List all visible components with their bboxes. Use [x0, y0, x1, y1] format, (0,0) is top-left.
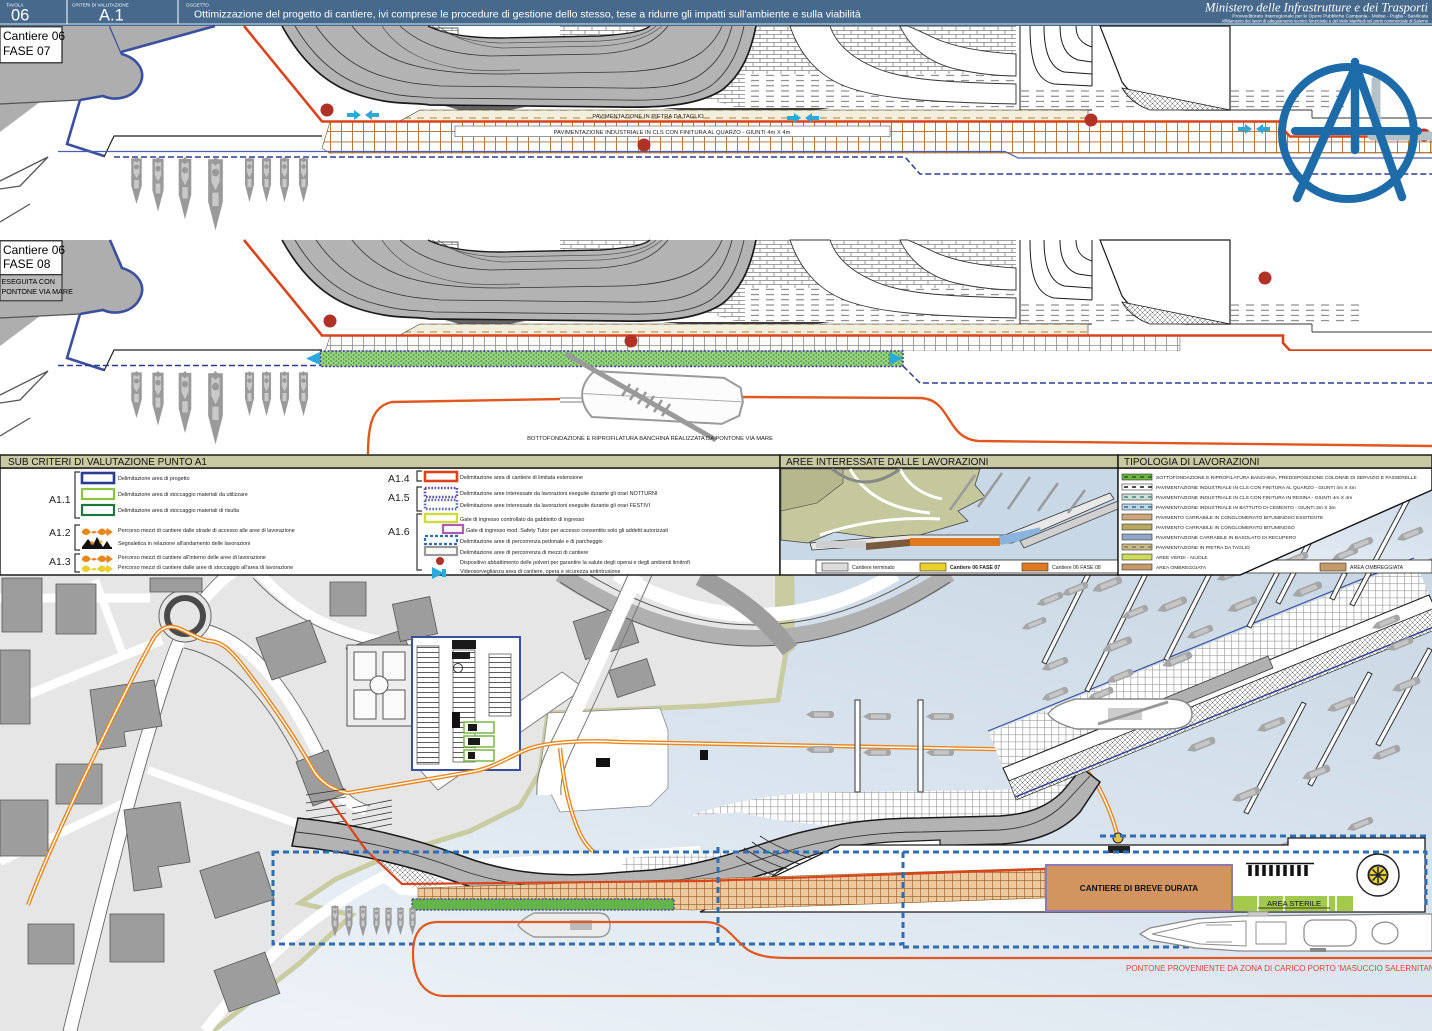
svg-text:Gate di ingresso controllato d: Gate di ingresso controllato da gabbiott… [460, 517, 584, 523]
svg-text:A1.4: A1.4 [388, 473, 410, 485]
svg-text:CANTIERE DI BREVE DURATA: CANTIERE DI BREVE DURATA [1080, 884, 1199, 893]
svg-text:Videosorveglianza area di cant: Videosorveglianza area di cantiere, oper… [460, 569, 621, 575]
svg-text:Cantiere 06: Cantiere 06 [3, 29, 65, 43]
svg-text:Cantiere 06 FASE 08: Cantiere 06 FASE 08 [1052, 565, 1101, 571]
svg-text:PONTONE VIA MARE: PONTONE VIA MARE [2, 287, 74, 296]
svg-text:A1.3: A1.3 [49, 556, 71, 568]
svg-text:AREA OMBREGGIATA: AREA OMBREGGIATA [1350, 565, 1404, 571]
svg-text:Delimitazione area di stoccagg: Delimitazione area di stoccaggio materia… [118, 508, 239, 514]
svg-text:Gate di ingresso mod. Safety T: Gate di ingresso mod. Safety Tutor per a… [466, 528, 668, 534]
svg-text:AREE INTERESSATE DALLE LAVORAZ: AREE INTERESSATE DALLE LAVORAZIONI [786, 457, 988, 468]
svg-text:Ministero delle Infrastrutture: Ministero delle Infrastrutture e dei Tra… [1204, 1, 1429, 15]
svg-text:Delimitazione aree interessate: Delimitazione aree interessate da lavora… [460, 503, 650, 509]
svg-text:SUB CRITERI DI VALUTAZIONE PUN: SUB CRITERI DI VALUTAZIONE PUNTO A1 [8, 457, 207, 468]
svg-text:Cantiere 06 FASE 07: Cantiere 06 FASE 07 [950, 565, 1000, 571]
svg-text:Delimitazione aree di percorre: Delimitazione aree di percorrenza di mez… [460, 550, 588, 556]
svg-text:BOTTOFONDAZIONE E RIPROFILATUR: BOTTOFONDAZIONE E RIPROFILATURA BANCHINA… [527, 436, 773, 442]
svg-text:PONTONE PROVENIENTE DA ZONA D: PONTONE PROVENIENTE DA ZONA DI CARICO PO… [1126, 964, 1432, 973]
svg-text:SOTTOFONDAZIONE E RIPROFILATUR: SOTTOFONDAZIONE E RIPROFILATURA BANCHINA… [1156, 475, 1418, 481]
svg-text:A1.6: A1.6 [388, 526, 410, 538]
svg-text:Affidamento dei lavori di adeg: Affidamento dei lavori di adeguamento te… [1222, 19, 1429, 24]
svg-text:Segnaletica in relazione all'a: Segnaletica in relazione all'andamento d… [118, 541, 250, 547]
svg-text:PAVIMENTAZIONE IN PIETRA DA TA: PAVIMENTAZIONE IN PIETRA DA TAGLIO [592, 114, 704, 120]
svg-text:06: 06 [11, 7, 29, 25]
svg-text:FASE 07: FASE 07 [3, 44, 51, 58]
svg-text:Cantiere 06: Cantiere 06 [3, 243, 65, 257]
svg-text:TIPOLOGIA DI LAVORAZIONI: TIPOLOGIA DI LAVORAZIONI [1124, 457, 1259, 468]
svg-text:ESEGUITA CON: ESEGUITA CON [2, 277, 55, 286]
svg-text:PAVIMENTAZIONE INDUSTRIALE IN: PAVIMENTAZIONE INDUSTRIALE IN CLS CON FI… [554, 130, 791, 136]
svg-text:PAVIMENTO CARRABILE IN CONGLOM: PAVIMENTO CARRABILE IN CONGLOMERATO BITU… [1156, 525, 1295, 531]
svg-text:AREE VERDI - AIUOLE: AREE VERDI - AIUOLE [1156, 555, 1208, 561]
svg-text:PAVIMENTAZIONE INDUSTRIALE IN: PAVIMENTAZIONE INDUSTRIALE IN CLS CON FI… [1156, 495, 1352, 501]
svg-text:OGGETTO: OGGETTO [186, 3, 209, 8]
svg-text:Percorso mezzi di cantiere dal: Percorso mezzi di cantiere dalle strade … [118, 528, 295, 534]
svg-text:Cantiere terminato: Cantiere terminato [852, 565, 895, 571]
svg-text:A1.5: A1.5 [388, 492, 410, 504]
svg-text:PAVIMENTO CARRABILE IN CONGLOM: PAVIMENTO CARRABILE IN CONGLOMERATO BITU… [1156, 515, 1324, 521]
svg-text:Delimitazione area di cantiere: Delimitazione area di cantiere di limita… [460, 475, 583, 481]
svg-text:PAVIMENTAZIONE CARRABILE IN BA: PAVIMENTAZIONE CARRABILE IN BASOLATO DI … [1156, 535, 1296, 541]
svg-text:PAVIMENTAZIONE INDUSTRIALE IN: PAVIMENTAZIONE INDUSTRIALE IN CLS CON FI… [1156, 485, 1356, 491]
svg-text:Delimitazione aree di percorre: Delimitazione aree di percorrenza pedona… [460, 539, 603, 545]
svg-text:A.1: A.1 [99, 7, 124, 25]
svg-text:Dispositivo abbattimento delle: Dispositivo abbattimento delle polveri p… [460, 560, 690, 566]
svg-text:AREA STERILE: AREA STERILE [1267, 899, 1321, 908]
svg-text:FASE 08: FASE 08 [3, 257, 51, 271]
svg-text:Delimitazione area di stoccagg: Delimitazione area di stoccaggio materia… [118, 492, 248, 498]
svg-text:Ottimizzazione del progetto di: Ottimizzazione del progetto di cantiere,… [194, 9, 861, 21]
svg-text:PAVIMENTAZIONE INDUSTRIALE IN: PAVIMENTAZIONE INDUSTRIALE IN BATTUTO DI… [1156, 505, 1336, 511]
svg-text:Delimitazione area di progetto: Delimitazione area di progetto [118, 476, 190, 482]
svg-text:PAVIMENTAZIONE IN PIETRA DA TA: PAVIMENTAZIONE IN PIETRA DA TAGLIO [1156, 545, 1250, 551]
svg-text:AREA OMBREGGIATA: AREA OMBREGGIATA [1156, 565, 1207, 571]
svg-text:A1.1: A1.1 [49, 494, 71, 506]
svg-text:A1.2: A1.2 [49, 527, 71, 539]
svg-text:Delimitazione aree interessate: Delimitazione aree interessate da lavora… [460, 491, 657, 497]
svg-text:Percorso mezzi di cantiere all: Percorso mezzi di cantiere all'interno d… [118, 555, 266, 561]
svg-text:Percorso mezzi di cantiere dal: Percorso mezzi di cantiere dalle aree di… [118, 565, 293, 571]
